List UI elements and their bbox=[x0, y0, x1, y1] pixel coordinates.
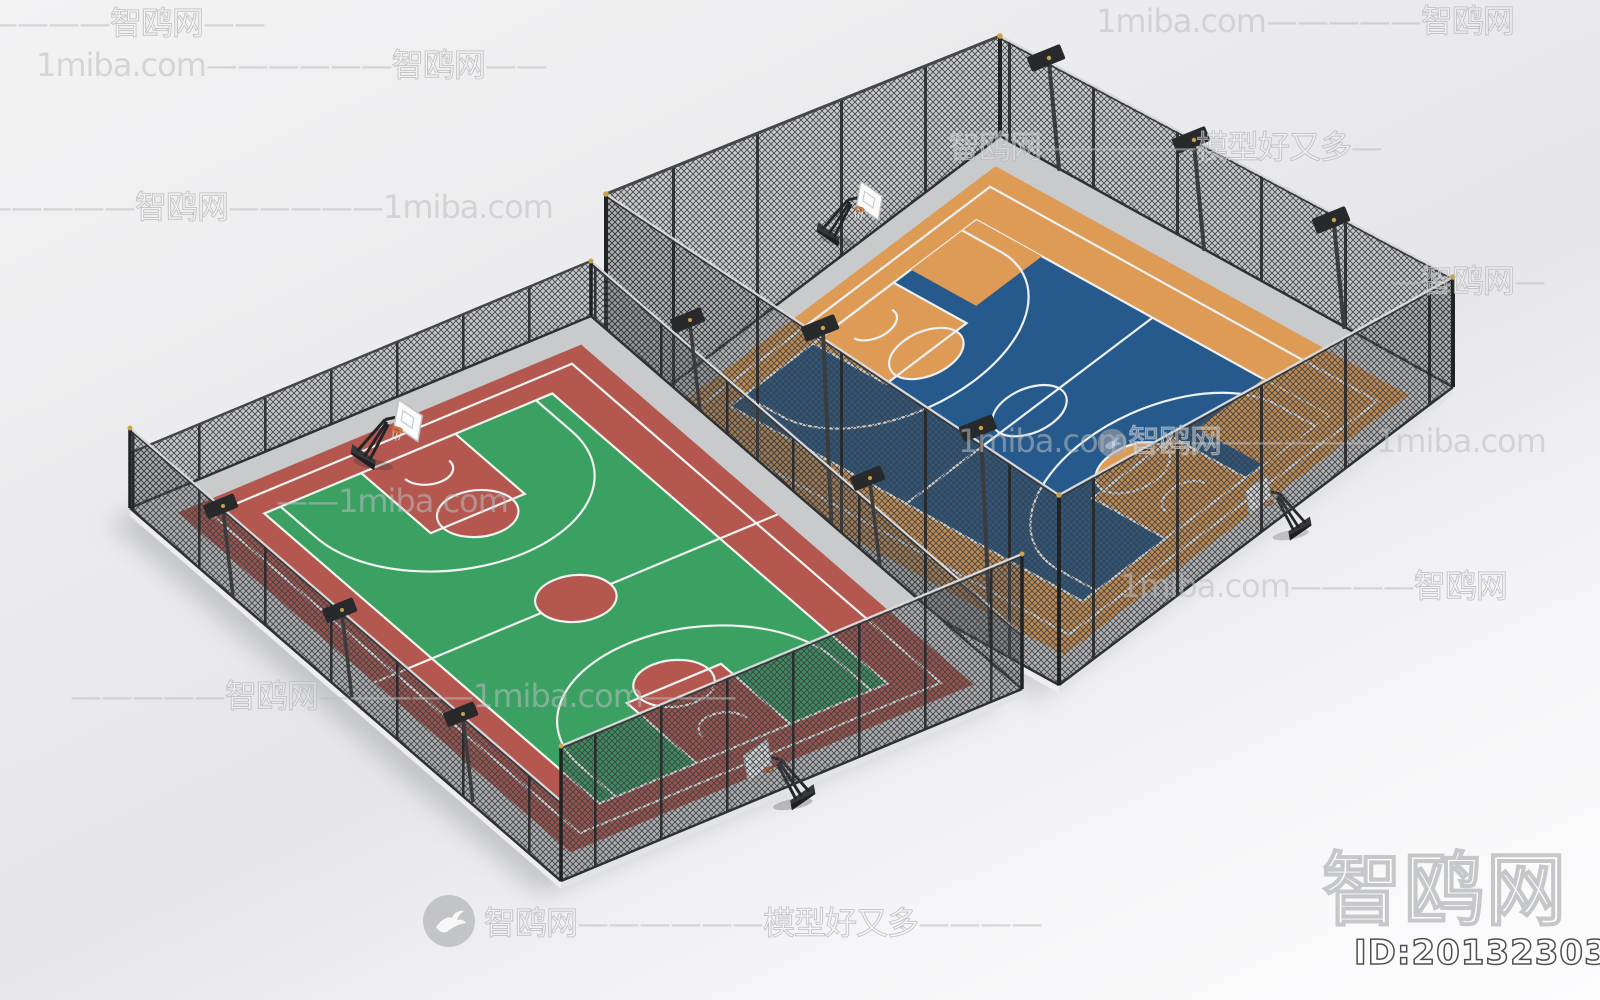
watermark-row: 1miba.com—————智鸥网 bbox=[1096, 2, 1514, 40]
seagull-logo-icon bbox=[423, 895, 475, 947]
watermark-row: —————智鸥网—————1miba.com bbox=[0, 188, 553, 226]
site-logo-text: 智鸥网 bbox=[1322, 844, 1568, 937]
scene-svg: ————智鸥网—— 1miba.com—————智鸥网 1miba.com———… bbox=[0, 0, 1600, 1000]
render-image: ————智鸥网—— 1miba.com—————智鸥网 1miba.com———… bbox=[0, 0, 1600, 1000]
model-id-text: ID:201323036 bbox=[1354, 933, 1600, 973]
watermark-row: ——1miba.com bbox=[276, 482, 508, 520]
watermark-row: 智鸥网——————模型好又多———— bbox=[484, 904, 1042, 942]
watermark-row: 1miba.com——————智鸥网—— bbox=[36, 46, 547, 84]
watermark-row: 智鸥网—————1miba.com bbox=[1128, 422, 1546, 460]
watermark-row: —————智鸥网—————1miba.com——— bbox=[70, 677, 736, 715]
watermark-row: ————智鸥网—— bbox=[0, 4, 265, 42]
watermark-row: 1miba.com————智鸥网 bbox=[1120, 567, 1507, 605]
seagull-logo-icon bbox=[1098, 429, 1127, 458]
watermark-row: —智鸥网— bbox=[1390, 262, 1545, 300]
watermark-row: 智鸥网—————模型好又多— bbox=[948, 128, 1382, 166]
